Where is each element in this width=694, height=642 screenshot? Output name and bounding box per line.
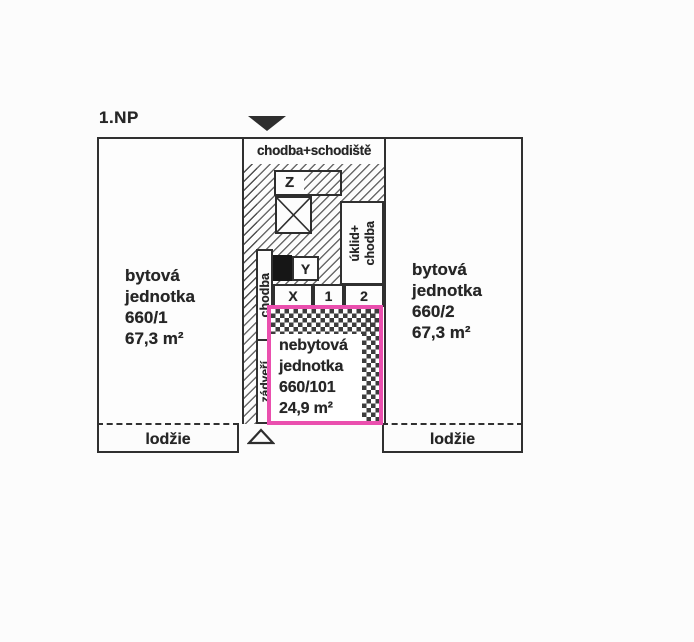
unit-left-label: bytová jednotka 660/1 67,3 m² — [125, 265, 195, 349]
shaft-crossed-box — [275, 196, 312, 234]
cross-diagonals-icon — [277, 198, 310, 232]
checker-band-right — [362, 309, 379, 421]
box-2: 2 — [344, 284, 384, 307]
box-1: 1 — [313, 284, 344, 307]
nonres-line: nebytová — [279, 335, 348, 356]
section-marker-up-icon — [247, 428, 275, 445]
stair-z-hatch — [304, 172, 340, 194]
nonresidential-unit-highlight: nebytová jednotka 660/101 24,9 m² — [267, 305, 383, 425]
unit-right-line: bytová — [412, 259, 482, 280]
unit-right-room: bytová jednotka 660/2 67,3 m² — [384, 137, 523, 424]
box-x: X — [273, 284, 313, 307]
unit-right-label: bytová jednotka 660/2 67,3 m² — [412, 259, 482, 343]
stair-z-box: Z — [274, 170, 342, 196]
unit-left-line: bytová — [125, 265, 195, 286]
nonresidential-unit-label: nebytová jednotka 660/101 24,9 m² — [279, 335, 348, 419]
utility-room-label-line2: chodba — [363, 221, 377, 265]
unit-left-line: 67,3 m² — [125, 328, 195, 349]
y-box: Y — [292, 256, 319, 281]
unit-left-line: 660/1 — [125, 307, 195, 328]
unit-left-line: jednotka — [125, 286, 195, 307]
utility-room-label-line1: úklid+ — [348, 225, 362, 261]
section-marker-down-icon — [248, 116, 286, 131]
loggia-left: lodžie — [97, 423, 239, 453]
floor-level-label: 1.NP — [99, 108, 139, 128]
solid-wall-block — [273, 255, 292, 281]
stair-z-label: Z — [285, 174, 294, 191]
floor-plan-canvas: 1.NP bytová jednotka 660/1 67,3 m² bytov… — [0, 0, 694, 642]
nonres-line: 660/101 — [279, 377, 348, 398]
nonres-line: jednotka — [279, 356, 348, 377]
nonres-line: 24,9 m² — [279, 398, 348, 419]
unit-right-line: jednotka — [412, 280, 482, 301]
unit-left-room: bytová jednotka 660/1 67,3 m² — [97, 137, 244, 424]
utility-corridor-room: úklid+ chodba — [340, 201, 384, 285]
unit-right-line: 660/2 — [412, 301, 482, 322]
corridor-header-label: chodba+schodiště — [244, 143, 384, 158]
unit-right-line: 67,3 m² — [412, 322, 482, 343]
loggia-right: lodžie — [382, 423, 523, 453]
